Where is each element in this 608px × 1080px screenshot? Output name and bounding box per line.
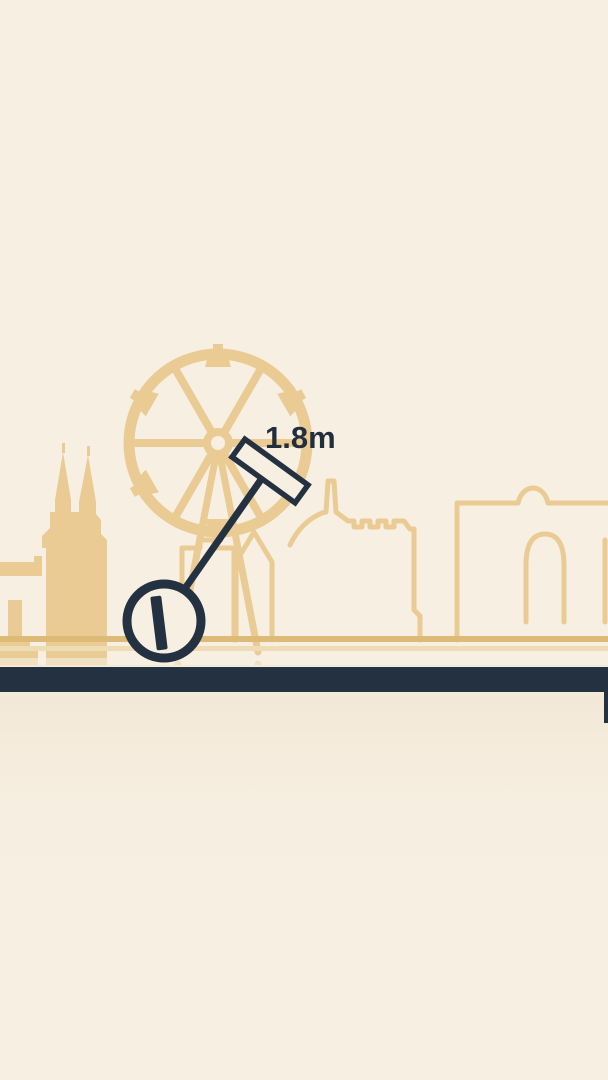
skyline [0, 344, 608, 658]
game-scene[interactable]: 1.8m [0, 0, 608, 1080]
scene-canvas [0, 0, 608, 1080]
ground-bar-edge-highlight [0, 692, 608, 695]
reflection-tint [0, 692, 608, 1080]
distance-label: 1.8m [265, 421, 336, 455]
right-edge-notch [604, 692, 608, 723]
ground-bar [0, 667, 608, 692]
